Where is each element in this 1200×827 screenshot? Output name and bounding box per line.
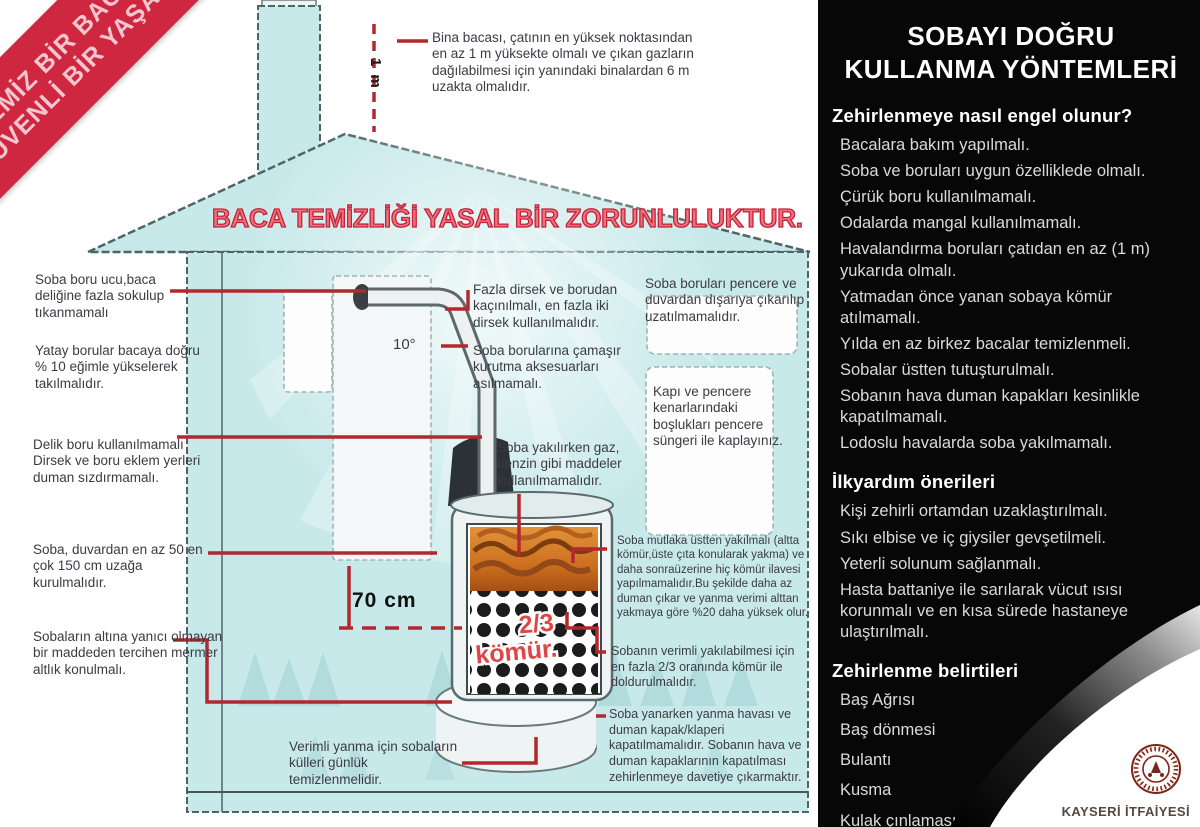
annotation-elbows: Fazla dirsek ve borudan kaçınılmalı, en … — [473, 282, 643, 331]
annotation-chimney-top: Bina bacası, çatının en yüksek noktasınd… — [432, 30, 700, 96]
info-panel: SOBAYI DOĞRU KULLANMA YÖNTEMLERİ Zehirle… — [818, 0, 1200, 827]
annotation-coal-level: Sobanın verimli yakılabilmesi için en fa… — [611, 644, 811, 691]
annotation-dampers: Soba yanarken yanma havası ve duman kapa… — [609, 707, 817, 785]
annotation-no-holes: Delik boru kullanılmamalı Dirsek ve boru… — [33, 437, 213, 486]
list-item: Sobanın hava duman kapakları kesinlikle … — [840, 386, 1190, 428]
list-item: Soba ve boruları uygun özelliklede olmal… — [840, 161, 1190, 182]
section-first-aid-heading: İlkyardım önerileri — [832, 471, 1190, 493]
annotation-marble-base: Sobaların altına yanıcı olmayan bir madd… — [33, 629, 223, 678]
list-item: Sıkı elbise ve iç giysiler gevşetilmeli. — [840, 528, 1190, 549]
prevention-list: Bacalara bakım yapılmalı. Soba ve borula… — [832, 135, 1190, 454]
list-item: Lodoslu havalarda soba yakılmamalı. — [840, 433, 1190, 454]
annotation-pipes-window: Soba boruları pencere ve duvardan dışarı… — [645, 276, 810, 325]
fire-department-emblem-icon — [1128, 741, 1184, 797]
panel-title-line-2: KULLANMA YÖNTEMLERİ — [832, 53, 1190, 86]
section-prevention-heading: Zehirlenmeye nasıl engel olunur? — [832, 105, 1190, 127]
list-item: Kişi zehirli ortamdan uzaklaştırılmalı. — [840, 501, 1190, 522]
annotation-top-burning: Soba mutlaka üstten yakılmalı (altta köm… — [617, 534, 817, 620]
stove: 2/3 kömür. — [436, 492, 613, 772]
list-item: Sobalar üstten tutuşturulmalı. — [840, 360, 1190, 381]
list-item: Havalandırma boruları çatıdan en az (1 m… — [840, 239, 1190, 281]
stove-safety-poster: 2/3 kömür. Bina bacası, çatının en yükse… — [0, 0, 1200, 827]
list-item: Yatmadan önce yanan sobaya kömür atılmam… — [840, 287, 1190, 329]
annotation-wall-distance: Soba, duvardan en az 50 en çok 150 cm uz… — [33, 542, 218, 591]
list-item: Yılda en az birkez bacalar temizlenmeli. — [840, 334, 1190, 355]
list-item: Bacalara bakım yapılmalı. — [840, 135, 1190, 156]
label-pipe-angle: 10° — [393, 336, 416, 353]
section-prevention: Zehirlenmeye nasıl engel olunur? Bacalar… — [832, 105, 1190, 454]
annotation-no-gas: Soba yakılırken gaz, benzin gibi maddele… — [497, 440, 652, 489]
label-seventy-cm: 70 cm — [352, 589, 417, 613]
chimney-column — [333, 276, 431, 560]
annotation-horizontal-pipes: Yatay borular bacaya doğru % 10 eğimle y… — [35, 343, 200, 392]
legal-obligation-banner: BACA TEMİZLİĞİ YASAL BİR ZORUNLULUKTUR. — [212, 203, 816, 234]
annotation-pipe-end: Soba boru ucu,baca deliğine fazla sokulu… — [35, 272, 190, 321]
label-one-meter: 1 m — [367, 58, 384, 118]
annotation-ash-cleaning: Verimli yanma için sobaların külleri gün… — [289, 739, 464, 788]
annotation-window-foam: Kapı ve pencere kenarlarındaki boşluklar… — [653, 384, 788, 450]
panel-title-line-1: SOBAYI DOĞRU — [832, 20, 1190, 53]
list-item: Odalarda mangal kullanılmamalı. — [840, 213, 1190, 234]
fire-department-name: KAYSERİ İTFAİYESİ — [1062, 804, 1190, 819]
annotation-no-laundry: Soba borularına çamaşır kurutma aksesuar… — [473, 343, 638, 392]
stove-top-plate — [451, 492, 613, 518]
left-wall-window — [284, 290, 332, 392]
list-item: Yeterli solunum sağlanmalı. — [840, 554, 1190, 575]
list-item: Çürük boru kullanılmamalı. — [840, 187, 1190, 208]
panel-title: SOBAYI DOĞRU KULLANMA YÖNTEMLERİ — [832, 20, 1190, 85]
